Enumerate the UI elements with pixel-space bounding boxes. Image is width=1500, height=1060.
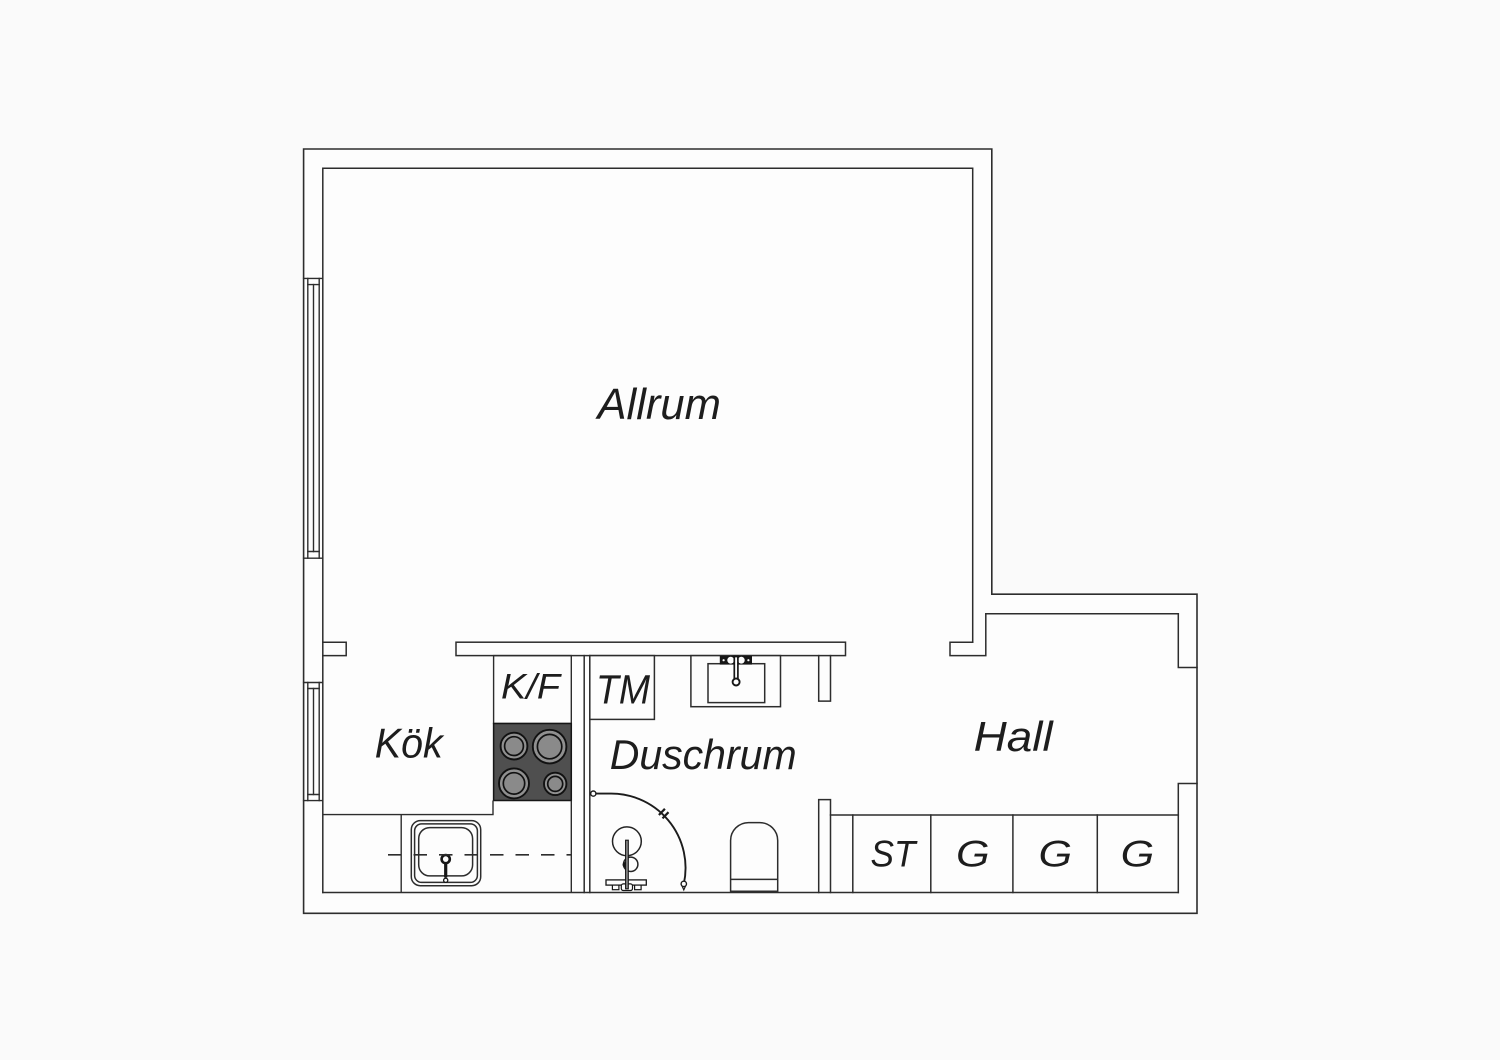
svg-text:Hall: Hall bbox=[974, 713, 1055, 760]
svg-text:G: G bbox=[1121, 833, 1155, 874]
svg-text:Duschrum: Duschrum bbox=[610, 731, 797, 778]
svg-text:TM: TM bbox=[596, 666, 650, 712]
svg-text:Allrum: Allrum bbox=[594, 381, 721, 429]
svg-text:G: G bbox=[956, 833, 990, 874]
svg-text:G: G bbox=[1038, 833, 1072, 874]
svg-text:Kök: Kök bbox=[375, 719, 445, 766]
svg-text:K/F: K/F bbox=[501, 668, 563, 707]
svg-text:ST: ST bbox=[871, 833, 918, 874]
